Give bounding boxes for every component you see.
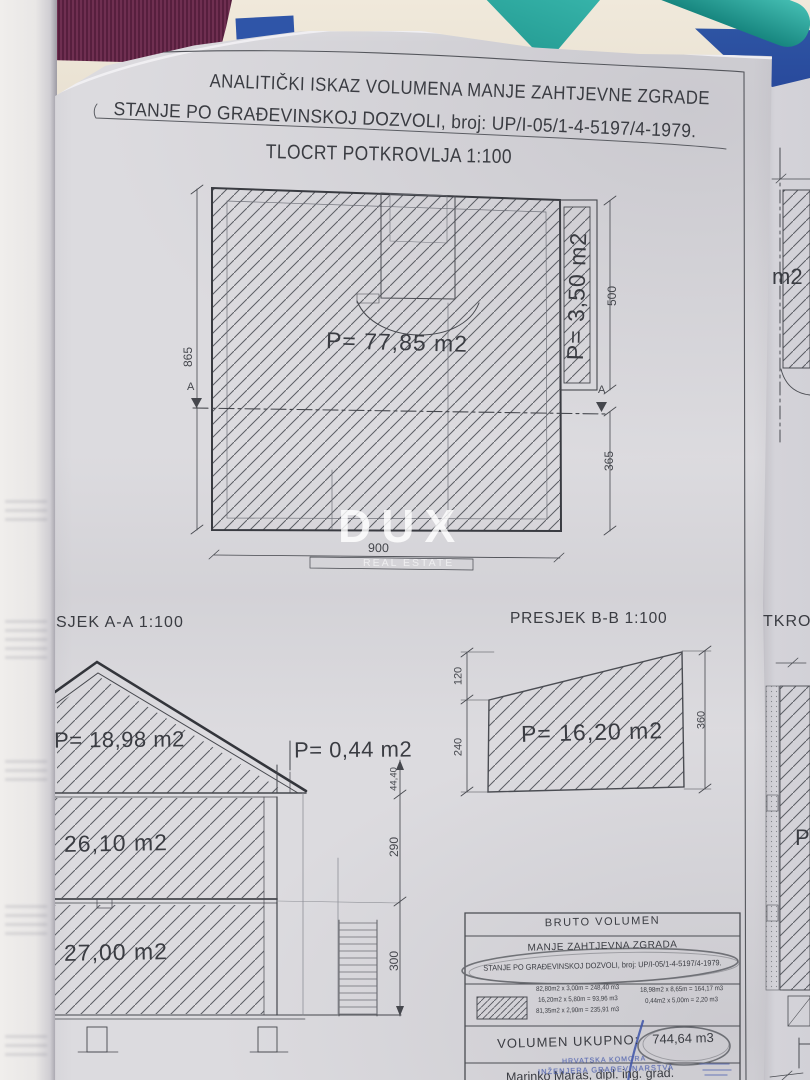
section-marker-a-right: A <box>598 385 605 396</box>
photo-of-architectural-document: ANALITIČKI ISKAZ VOLUMENA MANJE ZAHTJEVN… <box>0 0 810 1080</box>
upper-floor-area-label: 26,10 m2 <box>64 831 168 856</box>
dim-290: 290 <box>388 837 400 857</box>
lower-floor-area-label: 27,00 m2 <box>64 940 168 965</box>
plan-title: TLOCRT POTKROVLJA 1:100 <box>266 142 513 167</box>
section-aa-drawing <box>55 662 406 1052</box>
watermark-real-estate: REAL ESTATE <box>363 558 454 569</box>
dim-300: 300 <box>388 951 400 971</box>
roof-area-label: P= 18,98 m2 <box>54 728 185 751</box>
adjacent-p-label: P= <box>795 827 810 849</box>
adjacent-m2-label: m2 <box>772 266 803 288</box>
plan-area-label: P= 77,85 m2 <box>326 329 469 356</box>
plan-side-area-label: P= 3,50 m2 <box>564 232 590 361</box>
dim-120: 120 <box>454 667 465 685</box>
section-aa-title: SJEK A-A 1:100 <box>56 615 184 631</box>
total-label: VOLUMEN UKUPNO: <box>497 1033 639 1050</box>
dim-360: 360 <box>697 711 708 729</box>
adjacent-title-partial: TKROV <box>763 614 810 630</box>
dim-365: 365 <box>603 451 615 471</box>
watermark-dux: DUX <box>338 503 465 549</box>
dim-240: 240 <box>454 738 465 756</box>
dim-500: 500 <box>606 286 618 306</box>
total-value: 744,64 m3 <box>652 1031 714 1046</box>
eave-area-label: P= 0,44 m2 <box>294 738 412 761</box>
bb-area-label: P= 16,20 m2 <box>521 719 664 746</box>
dim-865: 865 <box>182 347 194 367</box>
section-bb-title: PRESJEK B-B 1:100 <box>510 611 667 627</box>
dim-44-40: 44,40 <box>389 767 399 791</box>
section-marker-a-left: A <box>187 382 194 393</box>
